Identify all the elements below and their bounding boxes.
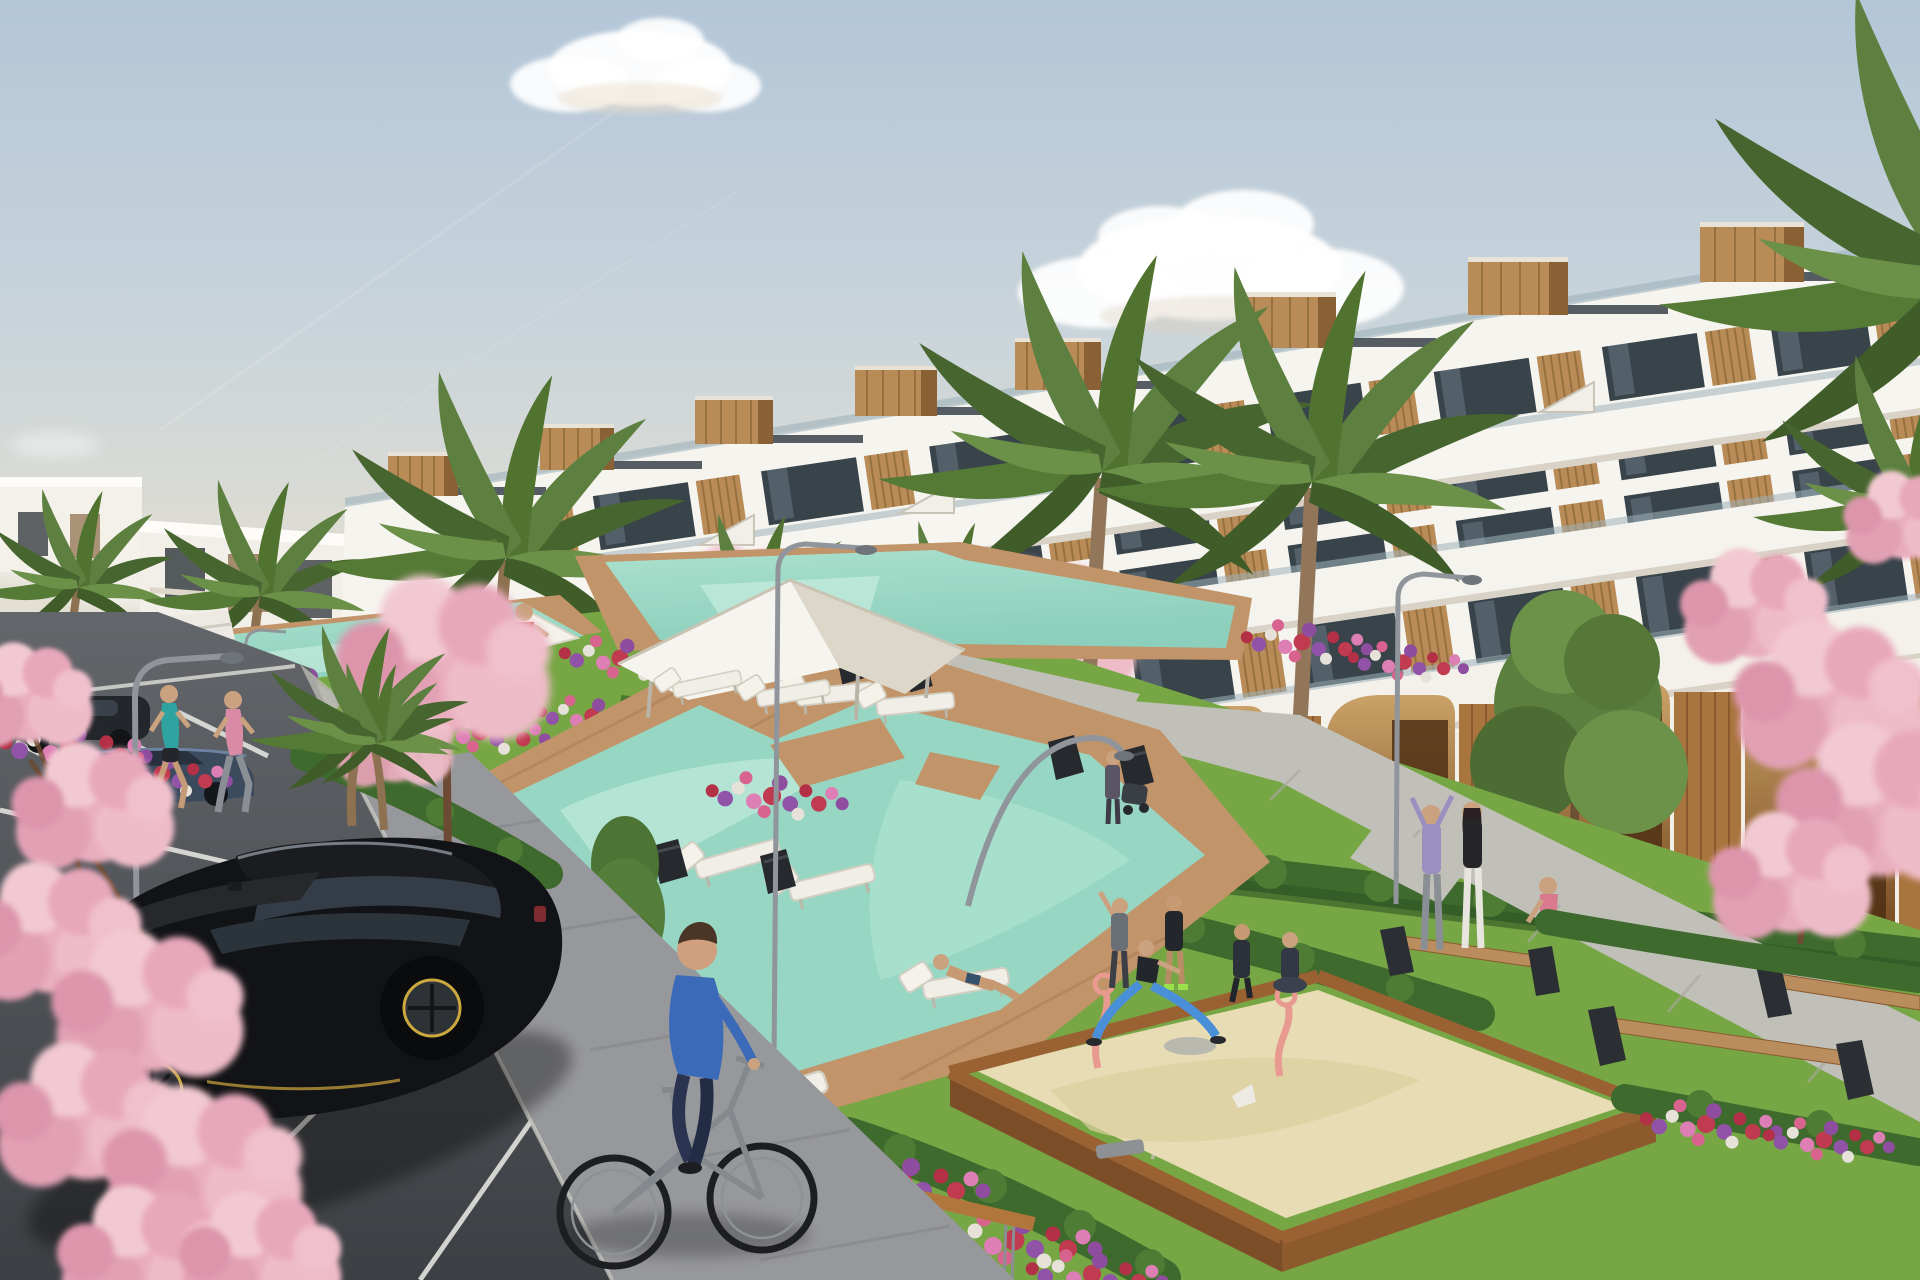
scene-canvas: Modern residential complex exterior rend… [0,0,1920,1280]
car-taillight [534,906,546,922]
rendered-image: Modern residential complex exterior rend… [0,0,1920,1280]
